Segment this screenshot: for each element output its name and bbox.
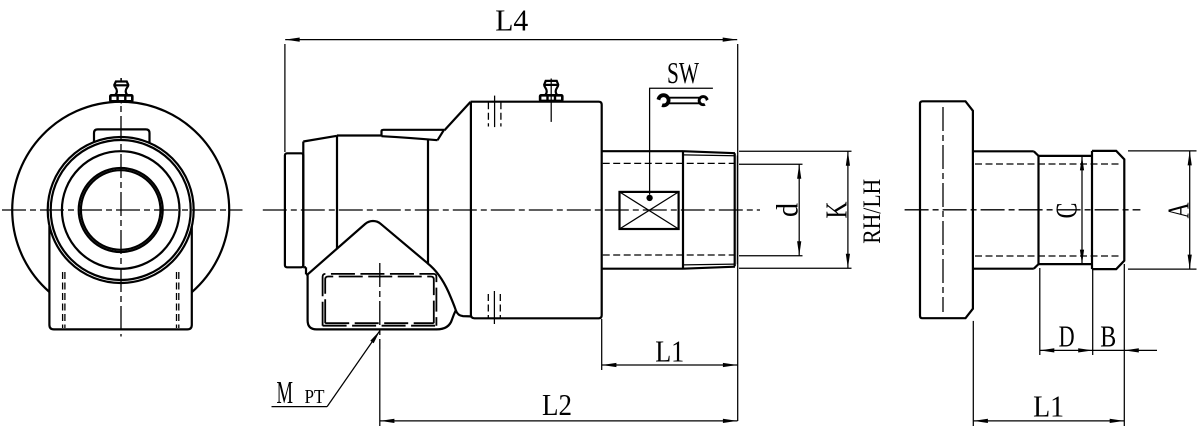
svg-text:L1: L1 bbox=[1033, 389, 1064, 424]
svg-text:A: A bbox=[1161, 202, 1196, 218]
svg-text:L4: L4 bbox=[495, 3, 528, 38]
svg-text:B: B bbox=[1100, 319, 1116, 354]
svg-text:C: C bbox=[1049, 203, 1084, 219]
svg-text:d: d bbox=[770, 203, 805, 217]
svg-text:RH/LH: RH/LH bbox=[859, 179, 886, 244]
svg-text:M: M bbox=[277, 375, 294, 410]
svg-text:L1: L1 bbox=[655, 334, 684, 369]
svg-text:D: D bbox=[1059, 319, 1075, 354]
svg-text:K: K bbox=[819, 201, 854, 218]
svg-text:SW: SW bbox=[667, 55, 700, 90]
svg-text:PT: PT bbox=[305, 387, 325, 408]
svg-text:L2: L2 bbox=[542, 387, 572, 422]
